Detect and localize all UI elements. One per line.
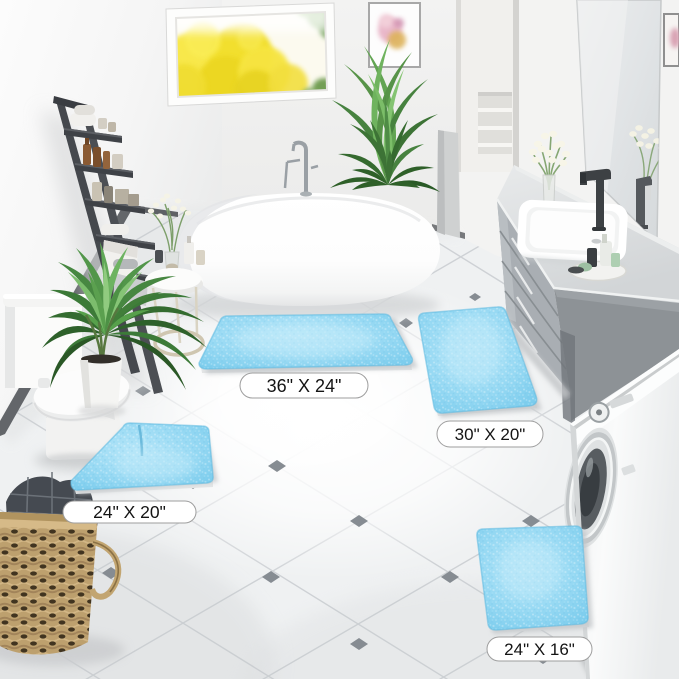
svg-text:30" X 20": 30" X 20"	[455, 425, 526, 444]
svg-text:24" X 16": 24" X 16"	[504, 640, 575, 659]
svg-text:24" X 20": 24" X 20"	[93, 502, 166, 522]
svg-text:36" X 24": 36" X 24"	[267, 376, 342, 396]
